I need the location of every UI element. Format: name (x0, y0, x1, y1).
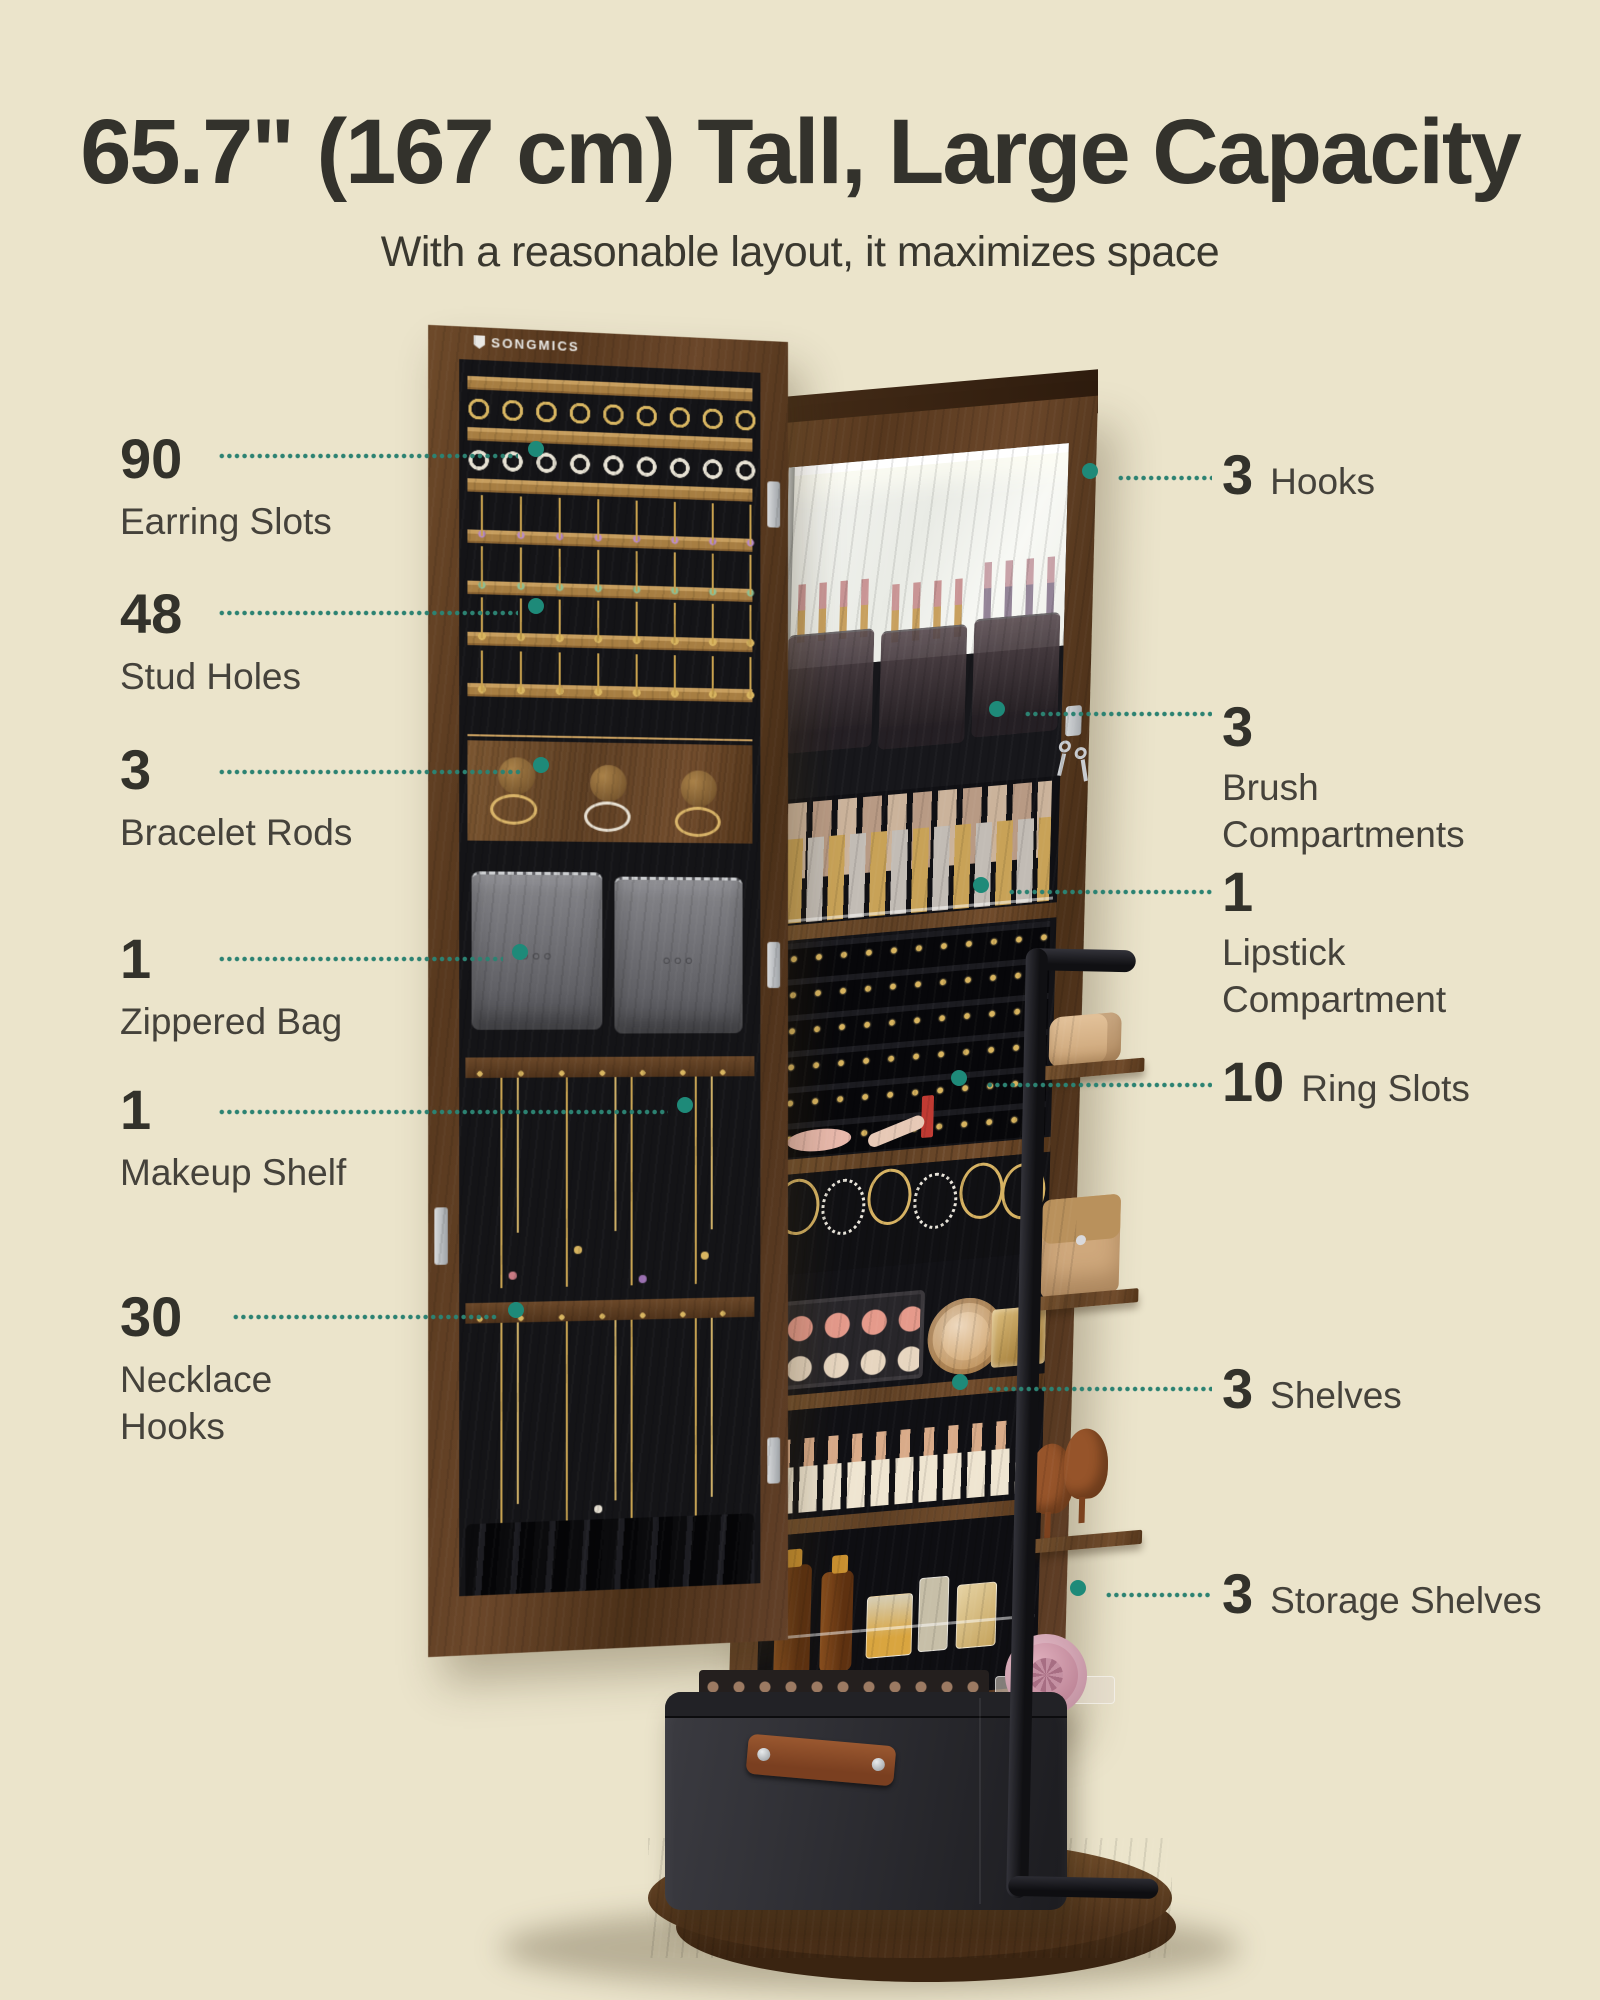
long-dangle-earrings-row (463, 650, 756, 719)
bracelet-rod-knob (590, 765, 626, 802)
callout-value: 3 (1222, 1360, 1253, 1419)
callout-lipstick-compartment: 1 Lipstick Compartment (1222, 863, 1492, 1024)
callout-endpoint (952, 1374, 968, 1390)
callout-value: 3 (1222, 1565, 1253, 1624)
brand-logo: SONGMICS (474, 334, 580, 354)
bracelet-rod-knob (681, 770, 717, 807)
callout-line (987, 1384, 1212, 1394)
door-hinge (767, 481, 780, 528)
gold-bangle (675, 806, 721, 837)
dangle-earrings-row (463, 597, 756, 649)
callout-label: Stud Holes (120, 653, 420, 700)
handle-bar-frame (1006, 948, 1196, 1911)
callout-label: Ring Slots (1301, 1065, 1470, 1112)
callout-line (218, 1107, 668, 1117)
callout-brush-compartments: 3 Brush Compartments (1222, 698, 1492, 859)
callout-label: Zippered Bag (120, 998, 420, 1045)
dangle-earrings-row (463, 494, 756, 549)
infographic-canvas: 65.7" (167 cm) Tall, Large Capacity With… (0, 0, 1600, 2000)
callout-line (218, 608, 518, 618)
callout-value: 3 (1222, 698, 1492, 757)
dangle-earrings-row (463, 546, 756, 599)
callout-shelves: 3 Shelves (1222, 1360, 1402, 1419)
perfume-bottle (956, 1581, 998, 1649)
brush-cup (785, 628, 874, 754)
handle-bar-foot (1008, 1876, 1158, 1899)
callout-endpoint (528, 441, 544, 457)
amber-bottle (819, 1570, 854, 1673)
page-title: 65.7" (167 cm) Tall, Large Capacity (0, 100, 1600, 205)
necklace-chains (470, 1317, 751, 1506)
callout-hooks: 3 Hooks (1222, 446, 1375, 505)
blush-palette (773, 1290, 925, 1391)
led-light-strip (789, 443, 1069, 477)
callout-line (218, 954, 503, 964)
callout-endpoint (1070, 1580, 1086, 1596)
callout-endpoint (1082, 463, 1098, 479)
storage-box-rim (665, 1692, 1067, 1718)
callout-endpoint (512, 944, 528, 960)
callout-endpoint (951, 1070, 967, 1086)
zippered-bag (472, 871, 603, 1030)
callout-ring-slots: 10 Ring Slots (1222, 1053, 1470, 1112)
callout-label: Storage Shelves (1270, 1577, 1542, 1624)
pearl-bangle (584, 801, 631, 832)
callout-endpoint (677, 1097, 693, 1113)
makeup-brushes (976, 556, 1064, 622)
key (1074, 746, 1088, 761)
perfume-bottle (918, 1576, 950, 1653)
callout-makeup-shelf: 1 Makeup Shelf (120, 1081, 420, 1196)
callout-label: Brush Compartments (1222, 764, 1492, 859)
callout-label: Lipstick Compartment (1222, 929, 1492, 1024)
callout-line (1024, 709, 1212, 719)
callout-value: 10 (1222, 1053, 1284, 1112)
callout-endpoint (508, 1302, 524, 1318)
key (1058, 740, 1072, 753)
callout-label: Bracelet Rods (120, 809, 420, 856)
zippered-bag (614, 877, 742, 1034)
page-subtitle: With a reasonable layout, it maximizes s… (0, 228, 1600, 277)
gold-bangle (490, 794, 537, 825)
handle-rivet (871, 1757, 885, 1771)
callout-line (1105, 1590, 1212, 1600)
brand-logo-text: SONGMICS (491, 335, 580, 354)
callout-earring-slots: 90 Earring Slots (120, 430, 420, 545)
callout-endpoint (973, 877, 989, 893)
callout-label: Hooks (1270, 458, 1375, 505)
callout-line (986, 1080, 1212, 1090)
door-hinge (767, 1437, 780, 1483)
callout-line (1008, 887, 1212, 897)
callout-label: Necklace Hooks (120, 1356, 342, 1451)
callout-line (232, 1312, 498, 1322)
door-hinge (434, 1207, 447, 1265)
leather-handle (746, 1734, 897, 1787)
velvet-pocket (465, 1513, 754, 1596)
handle-rivet (757, 1747, 771, 1761)
callout-endpoint (989, 701, 1005, 717)
door-interior (459, 359, 760, 1596)
red-lipstick (921, 1095, 934, 1138)
callout-storage-shelves: 3 Storage Shelves (1222, 1565, 1542, 1624)
callout-stud-holes: 48 Stud Holes (120, 585, 420, 700)
door-panel: SONGMICS (428, 325, 788, 1657)
callout-endpoint (528, 598, 544, 614)
door-hinge (767, 942, 780, 988)
callout-line (218, 767, 523, 777)
brush-cup (878, 624, 967, 750)
storage-box-seam (979, 1698, 981, 1904)
callout-label: Earring Slots (120, 498, 420, 545)
necklace-chains (470, 1076, 751, 1233)
necklace-hook-bar (465, 1056, 754, 1078)
callout-bracelet-rods: 3 Bracelet Rods (120, 741, 420, 856)
callout-value: 1 (1222, 863, 1492, 922)
callout-line (1117, 473, 1212, 483)
callout-line (218, 451, 518, 461)
callout-label: Makeup Shelf (120, 1149, 420, 1196)
callout-value: 3 (1222, 446, 1253, 505)
callout-endpoint (533, 757, 549, 773)
callout-zippered-bag: 1 Zippered Bag (120, 930, 420, 1045)
callout-label: Shelves (1270, 1372, 1402, 1419)
